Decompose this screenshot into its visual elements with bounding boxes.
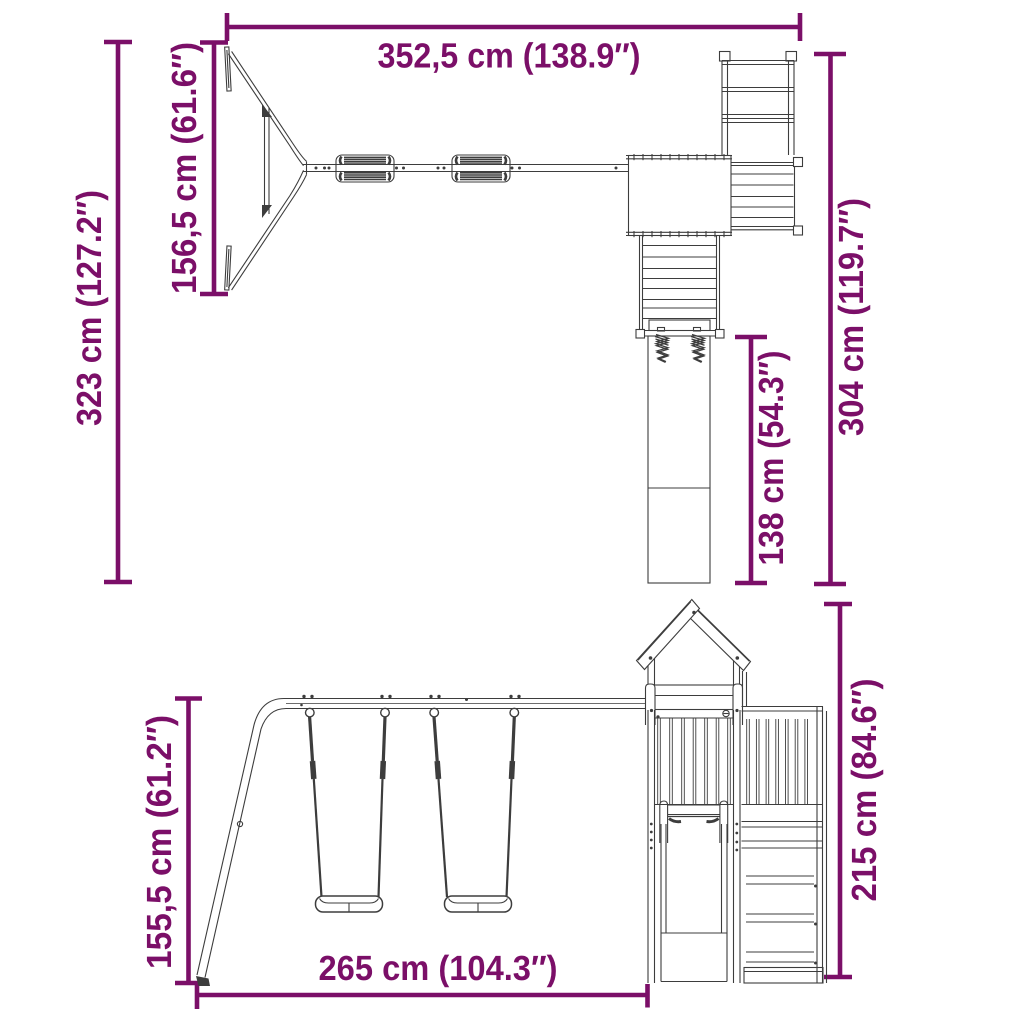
svg-text:352,5 cm (138.9″): 352,5 cm (138.9″)	[378, 37, 641, 76]
svg-text:155,5 cm (61.2″): 155,5 cm (61.2″)	[140, 715, 179, 969]
svg-text:215 cm (84.6″): 215 cm (84.6″)	[845, 679, 884, 902]
svg-text:265 cm (104.3″): 265 cm (104.3″)	[319, 949, 558, 988]
svg-text:323 cm (127.2″): 323 cm (127.2″)	[70, 190, 109, 426]
svg-text:138 cm (54.3″): 138 cm (54.3″)	[752, 351, 791, 566]
svg-text:304 cm (119.7″): 304 cm (119.7″)	[832, 198, 871, 436]
svg-text:156,5 cm (61.6″): 156,5 cm (61.6″)	[165, 42, 204, 294]
